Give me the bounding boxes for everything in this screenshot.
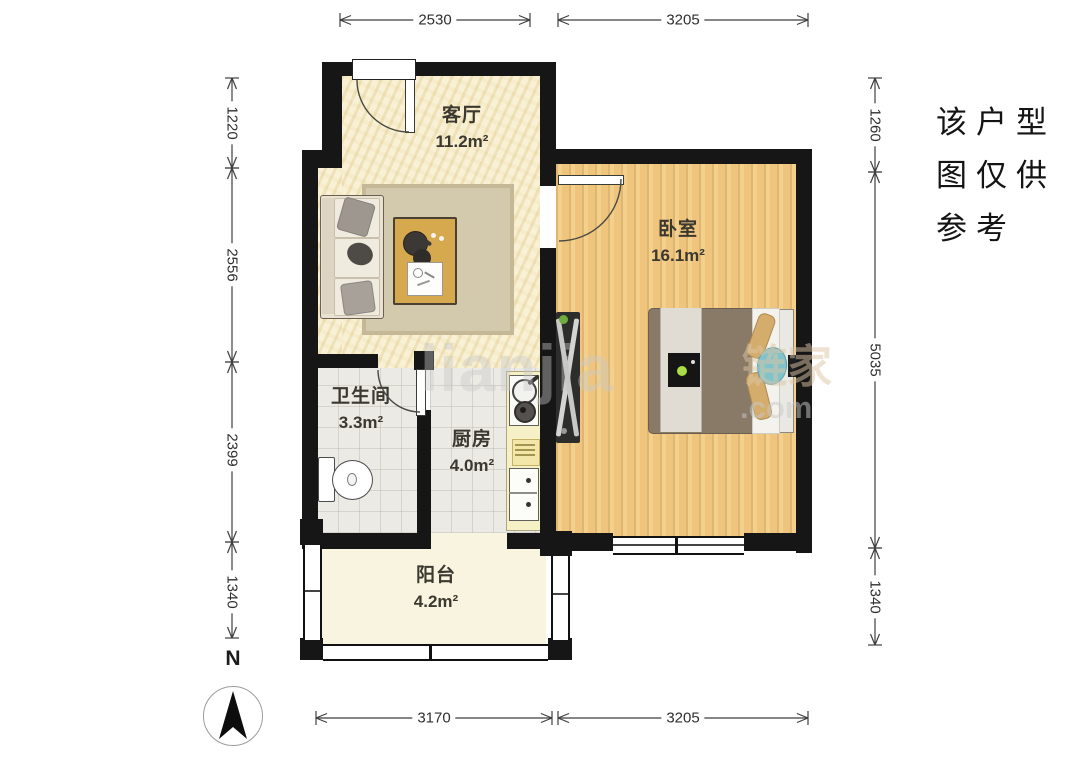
- dim-left-1: 1220: [224, 101, 241, 144]
- room-area: 3.3m²: [331, 410, 391, 435]
- bathroom-door-leaf: [416, 369, 426, 416]
- dim-right-1: 1260: [867, 103, 884, 146]
- room-area: 11.2m²: [436, 129, 489, 154]
- balcony-post-top-right: [540, 531, 572, 556]
- note-line: 参考: [936, 202, 1056, 255]
- table-dot: [439, 236, 444, 241]
- balcony-post-bottom-left: [300, 638, 323, 660]
- plant-sprig: [559, 315, 568, 324]
- room-label-kitchen: 厨房 4.0m²: [450, 426, 494, 478]
- wall-bedroom-right: [796, 149, 812, 553]
- dim-bottom-2: 3205: [661, 710, 704, 727]
- sofa-pillow: [340, 280, 376, 316]
- room-area: 4.0m²: [450, 453, 494, 478]
- bedroom-door-leaf: [558, 175, 624, 185]
- room-label-bedroom: 卧室 16.1m²: [651, 216, 705, 268]
- wall-bath-kitchen-divider: [417, 410, 431, 549]
- entry-door-leaf: [405, 77, 415, 133]
- room-name: 厨房: [450, 426, 494, 454]
- dim-right-3: 1340: [867, 575, 884, 618]
- toilet-drain: [347, 473, 357, 486]
- room-label-living: 客厅 11.2m²: [436, 102, 489, 154]
- window-mullion: [675, 538, 678, 553]
- dim-left-3: 2399: [224, 428, 241, 471]
- wall-bottom-right: [507, 533, 540, 549]
- wall-bathroom-post: [414, 351, 434, 370]
- balcony-window-right: [551, 556, 570, 640]
- wall-fixture: [788, 355, 796, 377]
- cabinet-knob: [526, 478, 531, 483]
- floor-plan: 客厅 11.2m² 卧室 16.1m² 卫生间 3.3m² 厨房 4.0m² 阳…: [0, 0, 1080, 768]
- wall-bedroom-top: [540, 149, 812, 164]
- burner-center: [520, 407, 526, 413]
- window-mullion: [429, 646, 432, 659]
- wall-bedroom-left: [540, 248, 556, 538]
- balcony-post-top-left: [300, 519, 323, 545]
- disclaimer-note: 该户型 图仅供 参考: [936, 96, 1056, 255]
- window-mullion: [553, 593, 568, 595]
- board-line: [515, 454, 535, 456]
- balcony-window-left: [303, 545, 322, 640]
- window-mid-line: [613, 544, 744, 546]
- dim-bottom-1: 3170: [412, 710, 455, 727]
- dim-right-2: 5035: [867, 338, 884, 381]
- room-label-bathroom: 卫生间 3.3m²: [331, 383, 391, 435]
- compass-circle: [203, 686, 263, 746]
- note-line: 图仅供: [936, 149, 1056, 202]
- dim-left-4: 1340: [224, 570, 241, 613]
- note-line: 该户型: [936, 96, 1056, 149]
- window-mullion: [305, 590, 320, 592]
- room-area: 16.1m²: [651, 243, 705, 268]
- room-name: 阳台: [414, 562, 458, 590]
- dim-top-2: 3205: [661, 12, 704, 29]
- room-area: 4.2m²: [414, 589, 458, 614]
- sofa-back: [322, 198, 334, 314]
- room-label-balcony: 阳台 4.2m²: [414, 562, 458, 614]
- table-tray: [407, 262, 443, 296]
- balcony-post-bottom-right: [548, 638, 572, 660]
- compass-north-label: N: [225, 647, 240, 671]
- board-line: [515, 444, 535, 446]
- cabinet-knob: [526, 502, 531, 507]
- wall-left-outer: [302, 150, 318, 533]
- room-name: 卫生间: [331, 383, 391, 411]
- sink-cabinet: [509, 468, 539, 521]
- board-line: [515, 449, 535, 451]
- tray-doodle: [413, 268, 423, 278]
- room-name: 客厅: [436, 102, 489, 130]
- wall-bedroom-bottom-right: [744, 533, 812, 551]
- wall-bedroom-left-stub: [540, 164, 556, 186]
- balcony-door-threshold: [430, 533, 507, 549]
- entry-door-frame: [352, 59, 416, 80]
- radiator-valve: [561, 428, 567, 434]
- dim-left-2: 2556: [224, 243, 241, 286]
- white-dot: [691, 360, 695, 364]
- green-dot: [677, 366, 687, 376]
- table-dot: [431, 233, 436, 238]
- cabinet-divider: [509, 492, 537, 494]
- wall-bathroom-top: [302, 354, 378, 368]
- balcony-window-bottom: [323, 644, 548, 661]
- room-name: 卧室: [651, 216, 705, 244]
- wall-top-right: [408, 62, 542, 76]
- bedroom-window: [613, 536, 744, 555]
- dim-top-1: 2530: [413, 12, 456, 29]
